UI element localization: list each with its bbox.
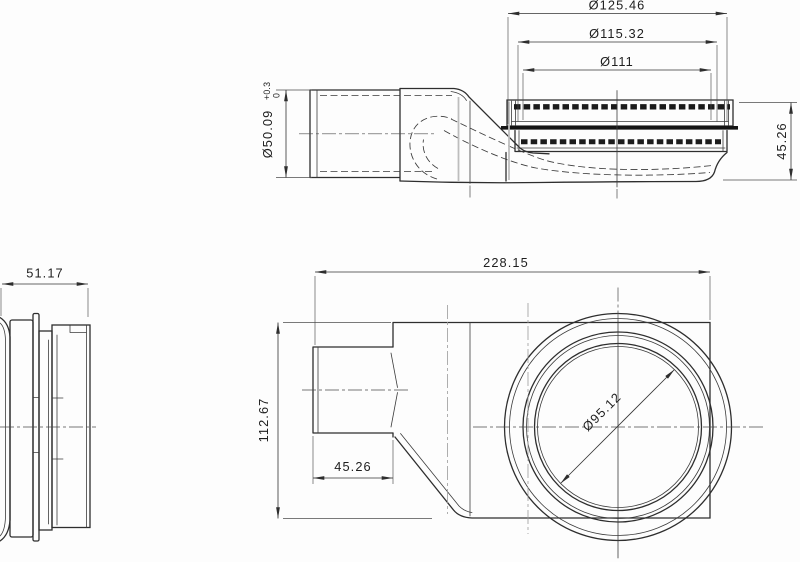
- dim-label-bore-diameter: Ø95.12: [579, 389, 624, 434]
- dim-inlet-diameter: Ø50.09 +0.3 0: [260, 82, 312, 178]
- section-line-ticks: [470, 186, 617, 199]
- dim-label-grate-diameter: Ø111: [600, 54, 634, 69]
- inlet-pipe-outline: [310, 89, 400, 182]
- dim-label-body-height: 112.67: [256, 398, 271, 443]
- flange-side-view: 51.17: [0, 266, 96, 542]
- grate-frame: [507, 100, 733, 126]
- flange-disc-inner: [0, 323, 6, 536]
- technical-drawing-canvas: Ø125.46 Ø115.32 Ø111 Ø50.09 +0.3 0: [0, 0, 800, 562]
- outlet-cylinder: [52, 325, 90, 528]
- drawing-sheet: Ø125.46 Ø115.32 Ø111 Ø50.09 +0.3 0: [0, 0, 800, 562]
- dim-body-height: 112.67: [256, 323, 432, 519]
- side-view: Ø125.46 Ø115.32 Ø111 Ø50.09 +0.3 0: [260, 0, 797, 199]
- dim-label-inlet-length: 45.26: [334, 459, 372, 474]
- dim-label-flange-height-group: 45.26: [774, 122, 789, 160]
- dim-inlet-length: 45.26: [313, 436, 393, 484]
- dim-flange-height: 45.26: [723, 103, 797, 181]
- dim-label-ring-diameter: Ø115.32: [589, 26, 645, 41]
- plan-view: 228.15 112.67 45.26 Ø95.12: [256, 255, 765, 558]
- dim-label-overall-length: 228.15: [483, 255, 529, 270]
- dim-label-inlet-diameter-group: Ø50.09 +0.3 0: [260, 82, 282, 158]
- outlet-cylinder-details: [52, 325, 87, 528]
- flange-plate: [10, 320, 33, 537]
- dim-flange-width: 51.17: [1, 266, 88, 318]
- dim-tolerance-upper: +0.3: [262, 82, 272, 100]
- extension-lines: [283, 323, 432, 519]
- dim-label-outer-diameter: Ø125.46: [589, 0, 646, 13]
- flange-disc-outline: [0, 318, 10, 542]
- dim-label-flange-height: 45.26: [774, 122, 789, 160]
- dim-overall-length: 228.15: [315, 255, 710, 345]
- dimension-line: [561, 370, 675, 484]
- gasket-notches: [34, 398, 39, 453]
- dim-label-flange-width: 51.17: [26, 266, 64, 281]
- extension-lines: [315, 276, 710, 345]
- dim-label-bore-diameter-group: Ø95.12: [579, 389, 624, 434]
- chamfer-inner-line: [401, 434, 473, 513]
- aux-gray-lines: [459, 97, 510, 181]
- body-outline: [393, 323, 710, 519]
- aux-centerlines: [448, 303, 529, 534]
- dim-label-inlet-diameter: Ø50.09: [260, 110, 275, 159]
- mid-collar: [39, 331, 52, 530]
- dim-bore-diameter: Ø95.12: [561, 370, 675, 484]
- dim-tolerance-lower: 0: [272, 93, 282, 98]
- dim-label-body-height-group: 112.67: [256, 398, 271, 443]
- extension-lines: [1, 288, 88, 317]
